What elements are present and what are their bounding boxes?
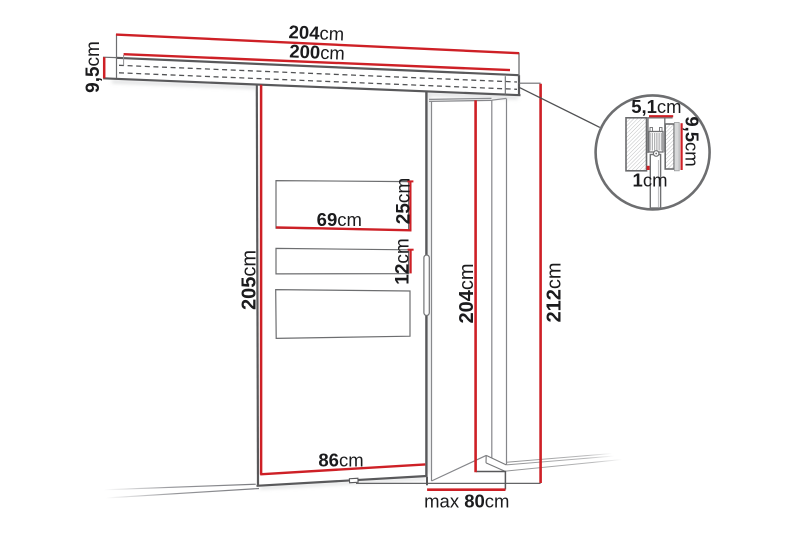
svg-text:86cm: 86cm [318, 449, 363, 470]
svg-text:5,1cm: 5,1cm [631, 96, 681, 117]
svg-text:25cm: 25cm [394, 178, 415, 224]
svg-text:9,5cm: 9,5cm [83, 41, 104, 93]
svg-text:69cm: 69cm [317, 209, 362, 230]
svg-text:205cm: 205cm [239, 250, 261, 310]
svg-text:212cm: 212cm [544, 262, 566, 322]
svg-text:9,5cm: 9,5cm [682, 116, 703, 166]
svg-text:12cm: 12cm [393, 238, 414, 284]
svg-text:max 80cm: max 80cm [424, 490, 509, 511]
svg-text:200cm: 200cm [289, 40, 345, 63]
svg-text:204cm: 204cm [456, 263, 478, 323]
svg-text:1cm: 1cm [633, 169, 668, 190]
